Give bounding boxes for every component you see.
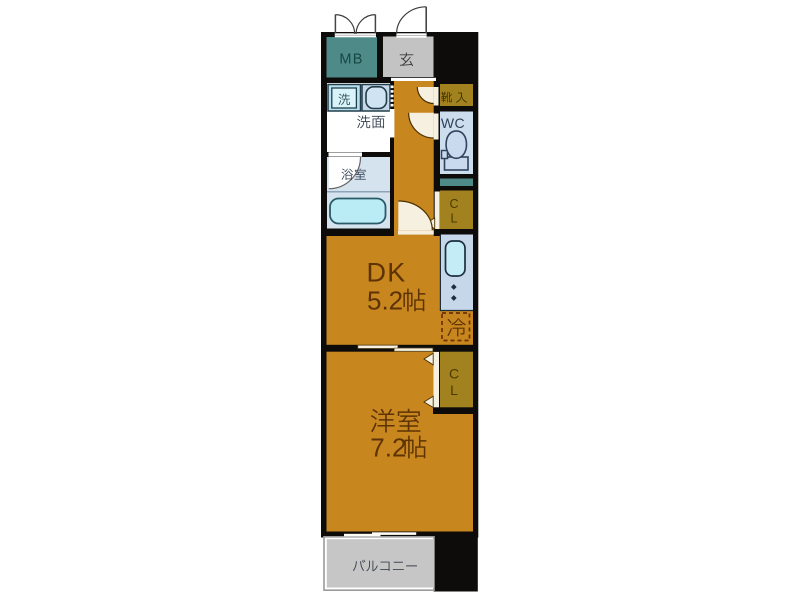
- svg-text:5.2: 5.2: [367, 286, 403, 316]
- svg-text:7.2: 7.2: [370, 433, 406, 463]
- svg-text:L: L: [450, 382, 458, 398]
- svg-text:DK: DK: [367, 258, 407, 288]
- svg-text:C: C: [449, 365, 459, 381]
- svg-text:L: L: [451, 212, 458, 226]
- svg-text:C: C: [449, 197, 458, 211]
- svg-text:MB: MB: [339, 52, 363, 68]
- svg-text:WC: WC: [441, 115, 465, 131]
